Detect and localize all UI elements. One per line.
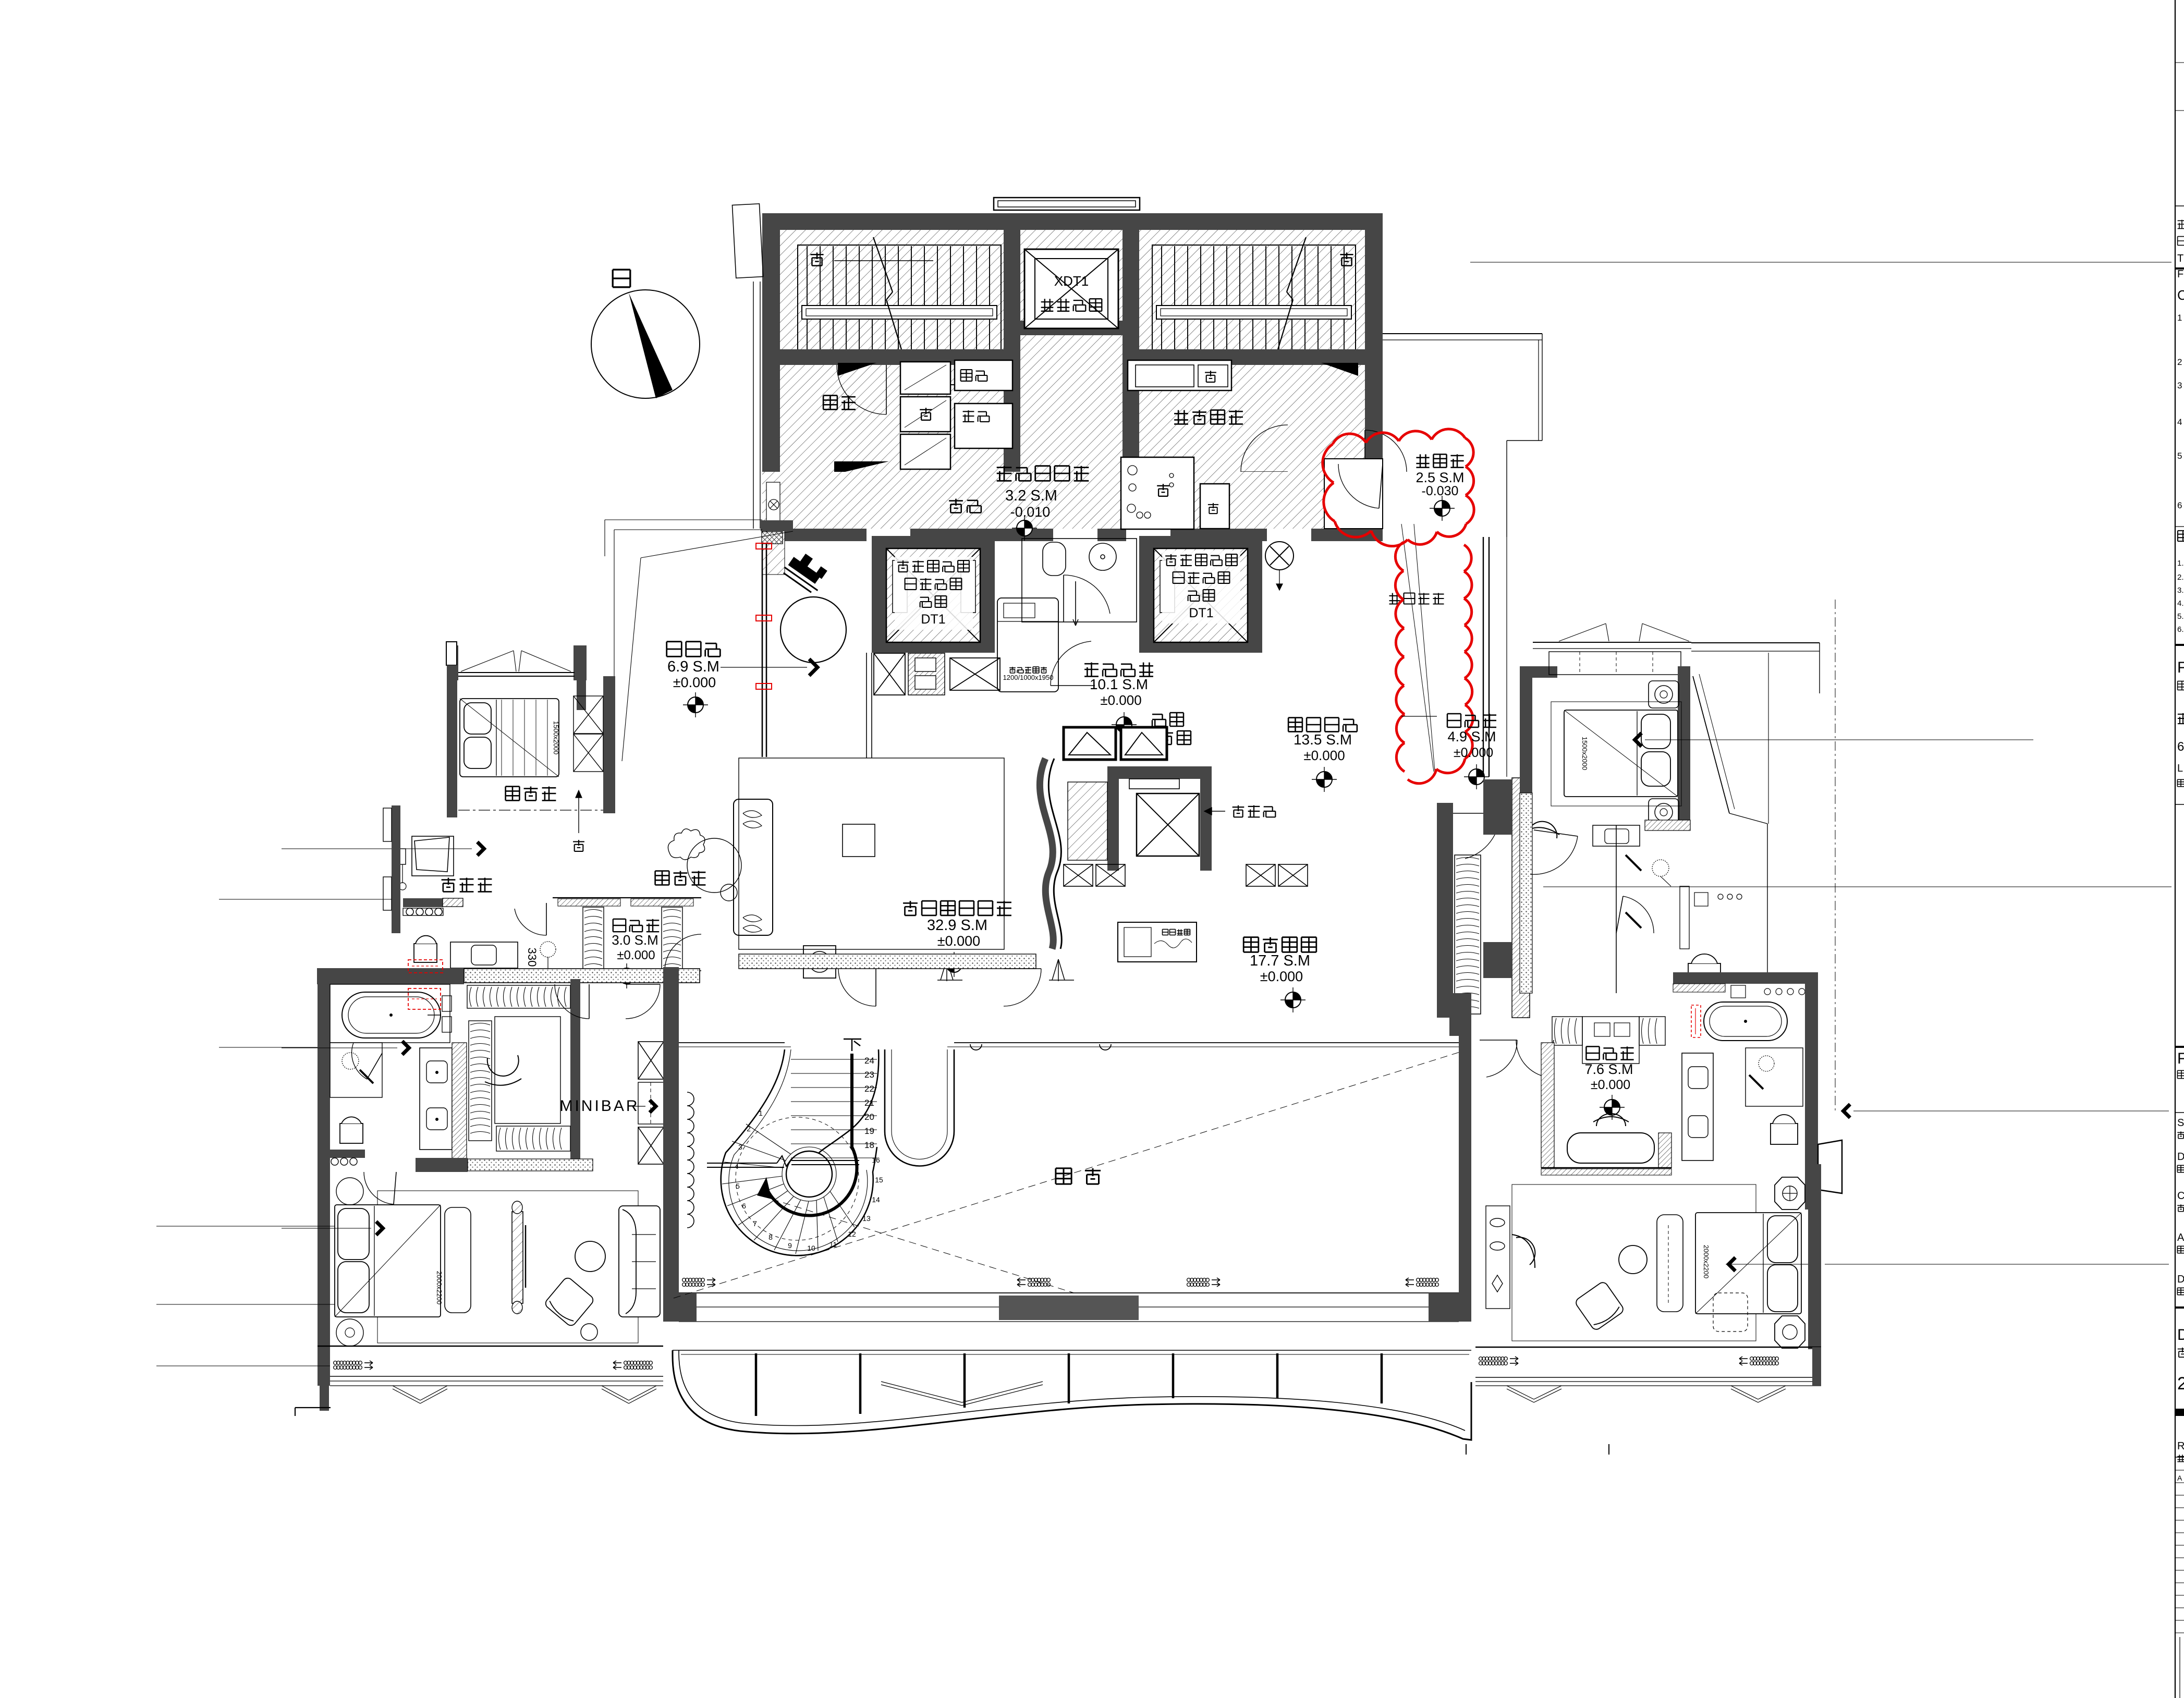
svg-text:6: 6 xyxy=(2177,740,2184,754)
svg-text:4: 4 xyxy=(735,1162,739,1170)
svg-text:S: S xyxy=(2177,1117,2184,1129)
svg-text:C: C xyxy=(2177,1190,2184,1202)
svg-text:-0.030: -0.030 xyxy=(1422,484,1459,498)
svg-text:20: 20 xyxy=(864,1112,874,1122)
svg-text:15: 15 xyxy=(875,1176,883,1184)
svg-text:6: 6 xyxy=(742,1202,746,1210)
svg-text:MINIBAR: MINIBAR xyxy=(559,1097,639,1115)
svg-text:10.1 S.M: 10.1 S.M xyxy=(1090,676,1148,692)
svg-text:23: 23 xyxy=(864,1070,874,1080)
svg-text:±0.000: ±0.000 xyxy=(1100,692,1141,708)
svg-text:19: 19 xyxy=(864,1126,874,1136)
svg-text:1: 1 xyxy=(759,1109,763,1117)
svg-text:13.5 S.M: 13.5 S.M xyxy=(1294,731,1352,748)
svg-text:7: 7 xyxy=(753,1219,757,1228)
svg-text:3.: 3. xyxy=(2177,586,2184,595)
svg-text:±0.000: ±0.000 xyxy=(617,948,655,962)
svg-text:2: 2 xyxy=(747,1125,751,1133)
svg-text:2000x2200: 2000x2200 xyxy=(435,1271,443,1304)
svg-text:1.: 1. xyxy=(2177,559,2184,568)
svg-text:L: L xyxy=(2177,763,2183,774)
svg-text:3.2 S.M: 3.2 S.M xyxy=(1005,487,1057,504)
svg-text:D: D xyxy=(2177,1326,2184,1343)
svg-text:1200/1000x1950: 1200/1000x1950 xyxy=(1003,674,1054,681)
svg-text:-0.010: -0.010 xyxy=(1010,504,1051,520)
svg-text:XDT1: XDT1 xyxy=(1054,273,1089,289)
svg-text:±0.000: ±0.000 xyxy=(1591,1078,1630,1092)
svg-text:5: 5 xyxy=(736,1182,740,1190)
svg-text:17.7 S.M: 17.7 S.M xyxy=(1250,952,1310,969)
svg-text:F: F xyxy=(2177,659,2184,676)
svg-text:F: F xyxy=(2177,268,2183,280)
svg-text:±0.000: ±0.000 xyxy=(1303,748,1345,763)
svg-text:4: 4 xyxy=(2177,417,2182,427)
svg-text:2.: 2. xyxy=(2177,573,2184,582)
svg-text:4.: 4. xyxy=(2177,599,2184,608)
svg-text:18: 18 xyxy=(864,1140,874,1150)
svg-text:R: R xyxy=(2177,1440,2184,1452)
svg-text:32.9 S.M: 32.9 S.M xyxy=(927,917,987,934)
svg-text:D: D xyxy=(2177,1274,2184,1285)
svg-text:330: 330 xyxy=(526,948,539,967)
svg-text:3: 3 xyxy=(738,1143,742,1151)
svg-text:16: 16 xyxy=(872,1156,880,1164)
svg-text:5: 5 xyxy=(2177,451,2182,461)
svg-text:6: 6 xyxy=(2177,500,2182,510)
svg-text:D: D xyxy=(2177,1151,2184,1163)
svg-text:7.6 S.M: 7.6 S.M xyxy=(1584,1061,1633,1077)
svg-text:±0.000: ±0.000 xyxy=(1260,969,1303,984)
svg-text:2: 2 xyxy=(2177,1374,2184,1394)
svg-text:8: 8 xyxy=(768,1233,773,1241)
svg-text:±0.000: ±0.000 xyxy=(673,675,716,690)
svg-text:3: 3 xyxy=(2177,381,2182,390)
svg-text:A: A xyxy=(2177,1232,2184,1243)
svg-text:13: 13 xyxy=(862,1214,871,1223)
svg-text:2000x2200: 2000x2200 xyxy=(1702,1245,1710,1278)
svg-text:±0.000: ±0.000 xyxy=(937,933,980,949)
svg-text:14: 14 xyxy=(872,1195,880,1204)
svg-text:24: 24 xyxy=(864,1056,874,1066)
svg-text:DT1: DT1 xyxy=(921,612,945,627)
svg-text:9: 9 xyxy=(788,1241,792,1250)
svg-text:A: A xyxy=(2177,1474,2182,1482)
svg-text:4.9 S.M: 4.9 S.M xyxy=(1447,729,1496,744)
svg-text:12: 12 xyxy=(848,1230,856,1238)
svg-text:6.: 6. xyxy=(2177,625,2184,634)
svg-text:2: 2 xyxy=(2177,357,2182,367)
svg-text:2.5 S.M: 2.5 S.M xyxy=(1416,470,1464,485)
svg-text:22: 22 xyxy=(864,1084,874,1094)
svg-text:T: T xyxy=(2177,253,2183,264)
svg-text:DT1: DT1 xyxy=(1189,606,1213,620)
svg-text:C: C xyxy=(2177,287,2184,303)
svg-text:1: 1 xyxy=(2177,313,2182,323)
svg-text:±0.000: ±0.000 xyxy=(1454,746,1493,760)
svg-text:21: 21 xyxy=(864,1098,874,1108)
svg-text:1500x2000: 1500x2000 xyxy=(1581,737,1589,770)
svg-text:5.: 5. xyxy=(2177,612,2184,621)
svg-text:1500x2000: 1500x2000 xyxy=(552,721,560,754)
svg-text:6.9 S.M: 6.9 S.M xyxy=(667,658,719,675)
svg-text:F: F xyxy=(2177,1050,2184,1067)
svg-text:10: 10 xyxy=(807,1244,815,1252)
svg-text:3.0 S.M: 3.0 S.M xyxy=(612,932,658,948)
svg-text:11: 11 xyxy=(829,1240,837,1249)
